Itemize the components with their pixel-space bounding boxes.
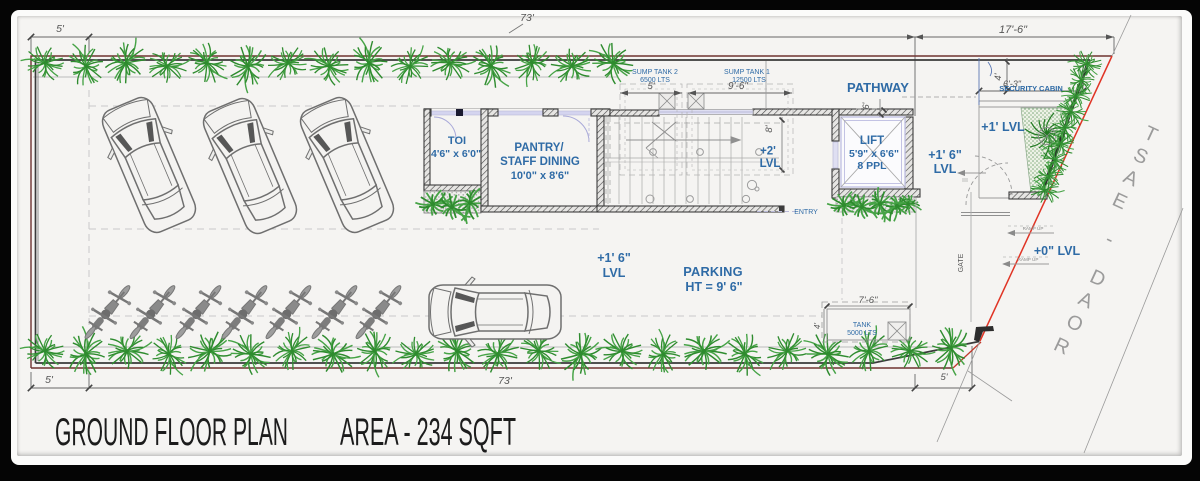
svg-text:A: A bbox=[1120, 166, 1142, 192]
svg-text:O: O bbox=[1063, 310, 1086, 337]
svg-text:12500 LTS: 12500 LTS bbox=[732, 77, 766, 84]
svg-text:5000 LTS: 5000 LTS bbox=[847, 330, 877, 337]
svg-text:S: S bbox=[1130, 144, 1151, 170]
svg-text:+1' 6": +1' 6" bbox=[597, 251, 631, 265]
svg-text:5': 5' bbox=[940, 372, 948, 383]
svg-text:6': 6' bbox=[861, 102, 871, 109]
svg-text:8 PPL: 8 PPL bbox=[857, 160, 887, 172]
svg-text:RAMP UP: RAMP UP bbox=[1023, 226, 1044, 231]
svg-text:GATE: GATE bbox=[958, 253, 965, 272]
svg-text:AREA - 234 SQFT: AREA - 234 SQFT bbox=[340, 411, 516, 454]
svg-text:7'-6": 7'-6" bbox=[859, 295, 879, 306]
svg-text:73': 73' bbox=[520, 12, 535, 24]
svg-text:5': 5' bbox=[56, 23, 65, 35]
svg-text:4'6" x 6'0": 4'6" x 6'0" bbox=[431, 148, 481, 160]
svg-text:+1' 6": +1' 6" bbox=[928, 148, 962, 162]
svg-text:+1' LVL: +1' LVL bbox=[981, 120, 1025, 134]
svg-text:STAFF DINING: STAFF DINING bbox=[500, 156, 580, 168]
svg-text:TANK: TANK bbox=[853, 322, 871, 329]
svg-text:ENTRY: ENTRY bbox=[794, 209, 818, 216]
svg-text:PATHWAY: PATHWAY bbox=[847, 80, 909, 95]
svg-text:6500 LTS: 6500 LTS bbox=[640, 77, 670, 84]
svg-text:T: T bbox=[1140, 122, 1160, 147]
svg-text:LVL: LVL bbox=[934, 162, 957, 176]
svg-text:D: D bbox=[1086, 266, 1108, 292]
svg-text:TOI: TOI bbox=[448, 135, 466, 147]
svg-text:-: - bbox=[1102, 228, 1117, 251]
svg-text:5'9" x 6'6": 5'9" x 6'6" bbox=[849, 148, 899, 160]
svg-text:A: A bbox=[1075, 288, 1097, 314]
svg-text:+0" LVL: +0" LVL bbox=[1034, 244, 1081, 258]
svg-text:+2': +2' bbox=[760, 146, 776, 158]
svg-text:8': 8' bbox=[764, 124, 775, 132]
svg-text:4': 4' bbox=[813, 323, 822, 329]
svg-text:GROUND FLOOR PLAN: GROUND FLOOR PLAN bbox=[55, 411, 288, 454]
svg-text:LIFT: LIFT bbox=[860, 135, 884, 147]
svg-text:10'0" x 8'6": 10'0" x 8'6" bbox=[511, 170, 569, 182]
svg-text:LVL: LVL bbox=[603, 266, 626, 280]
svg-text:LVL: LVL bbox=[760, 158, 781, 170]
svg-text:SUMP TANK 1: SUMP TANK 1 bbox=[724, 69, 770, 76]
svg-text:5': 5' bbox=[45, 374, 54, 386]
svg-text:HT = 9' 6": HT = 9' 6" bbox=[685, 280, 742, 294]
svg-text:PARKING: PARKING bbox=[683, 264, 742, 279]
svg-text:73': 73' bbox=[498, 375, 513, 387]
svg-text:E: E bbox=[1109, 189, 1130, 215]
svg-text:17'-6": 17'-6" bbox=[999, 24, 1028, 36]
svg-text:SUMP TANK 2: SUMP TANK 2 bbox=[632, 69, 678, 76]
svg-text:R: R bbox=[1050, 334, 1072, 360]
svg-text:PANTRY/: PANTRY/ bbox=[514, 142, 564, 154]
svg-text:SECURITY CABIN: SECURITY CABIN bbox=[999, 84, 1063, 93]
